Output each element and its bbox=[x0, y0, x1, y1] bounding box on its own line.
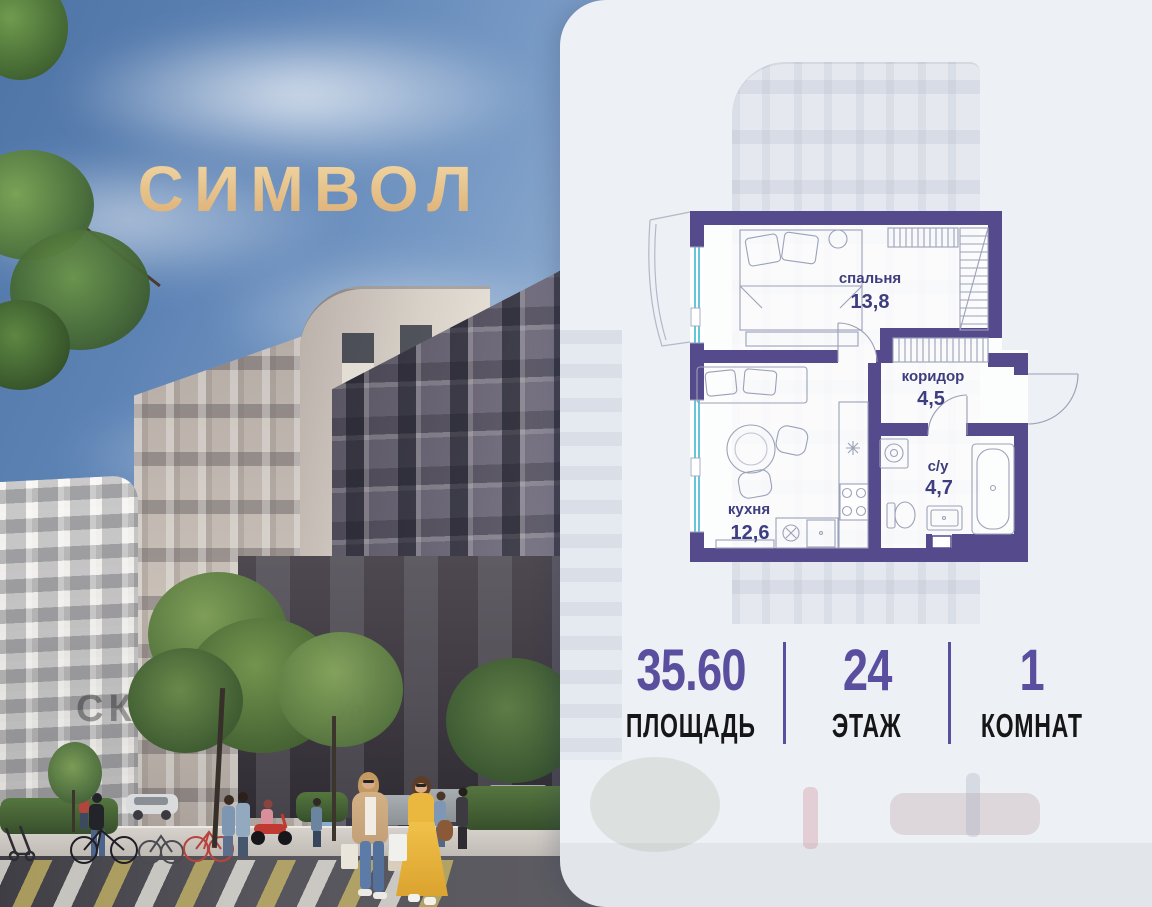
room-area-kitchen: 12,6 bbox=[731, 522, 770, 544]
street-tree bbox=[48, 742, 102, 804]
stat-area-label: ПЛОЩАДЬ bbox=[626, 709, 756, 742]
stat-rooms-value: 1 bbox=[1019, 642, 1043, 700]
red-moped bbox=[251, 800, 292, 846]
pedestrian-small bbox=[311, 798, 322, 847]
stat-floor: 24 ЭТАЖ bbox=[786, 642, 947, 744]
room-name-bathroom: с/у bbox=[928, 458, 950, 475]
exterior-photo: СКИДКА 12% СИМВОЛ bbox=[0, 0, 630, 907]
room-area-bathroom: 4,7 bbox=[925, 477, 953, 499]
stove-icon bbox=[840, 484, 868, 520]
tree-trunk bbox=[72, 790, 75, 832]
stats-section: 35.60 ПЛОЩАДЬ 24 ЭТАЖ 1 КОМНАТ bbox=[598, 642, 1112, 744]
room-area-bedroom: 13,8 bbox=[851, 291, 890, 313]
ghost-street-scene bbox=[560, 747, 1152, 907]
couple bbox=[222, 792, 250, 857]
stat-rooms: 1 КОМНАТ bbox=[951, 642, 1112, 744]
listing-card: СКИДКА 12% СИМВОЛ bbox=[0, 0, 1152, 907]
cloud bbox=[60, 20, 540, 170]
stat-floor-label: ЭТАЖ bbox=[832, 709, 901, 742]
room-name-bedroom: спальня bbox=[839, 270, 901, 287]
street-tree bbox=[128, 648, 243, 753]
room-name-corridor: коридор bbox=[902, 368, 965, 385]
bicycle-rack bbox=[139, 832, 233, 863]
balcony-outline bbox=[649, 212, 690, 346]
pedestrian-yellow-dress bbox=[392, 776, 452, 907]
room-area-corridor: 4,5 bbox=[917, 388, 945, 410]
stat-floor-value: 24 bbox=[843, 642, 892, 700]
kick-scooters bbox=[6, 826, 34, 860]
floorplan: спальня 13,8 коридор 4,5 кухня 12,6 с/у … bbox=[640, 190, 1110, 590]
duct-notch bbox=[932, 536, 951, 548]
sink-icon bbox=[846, 441, 860, 455]
white-car bbox=[126, 794, 178, 820]
stat-area: 35.60 ПЛОЩАДЬ bbox=[598, 642, 783, 744]
brand-logo: СИМВОЛ bbox=[120, 152, 500, 226]
street-tree bbox=[278, 632, 403, 747]
info-panel: спальня 13,8 коридор 4,5 кухня 12,6 с/у … bbox=[560, 0, 1152, 907]
entrance-door bbox=[1028, 374, 1078, 424]
stat-rooms-label: КОМНАТ bbox=[980, 709, 1082, 742]
room-name-kitchen: кухня bbox=[728, 501, 770, 518]
stat-area-value: 35.60 bbox=[636, 642, 745, 700]
tree-trunk bbox=[332, 716, 336, 841]
